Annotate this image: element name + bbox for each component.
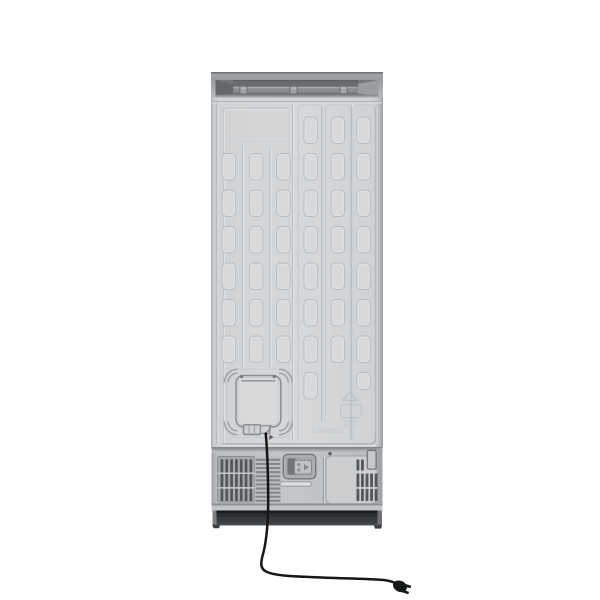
svg-text:L0A08B01: L0A08B01	[312, 428, 345, 435]
